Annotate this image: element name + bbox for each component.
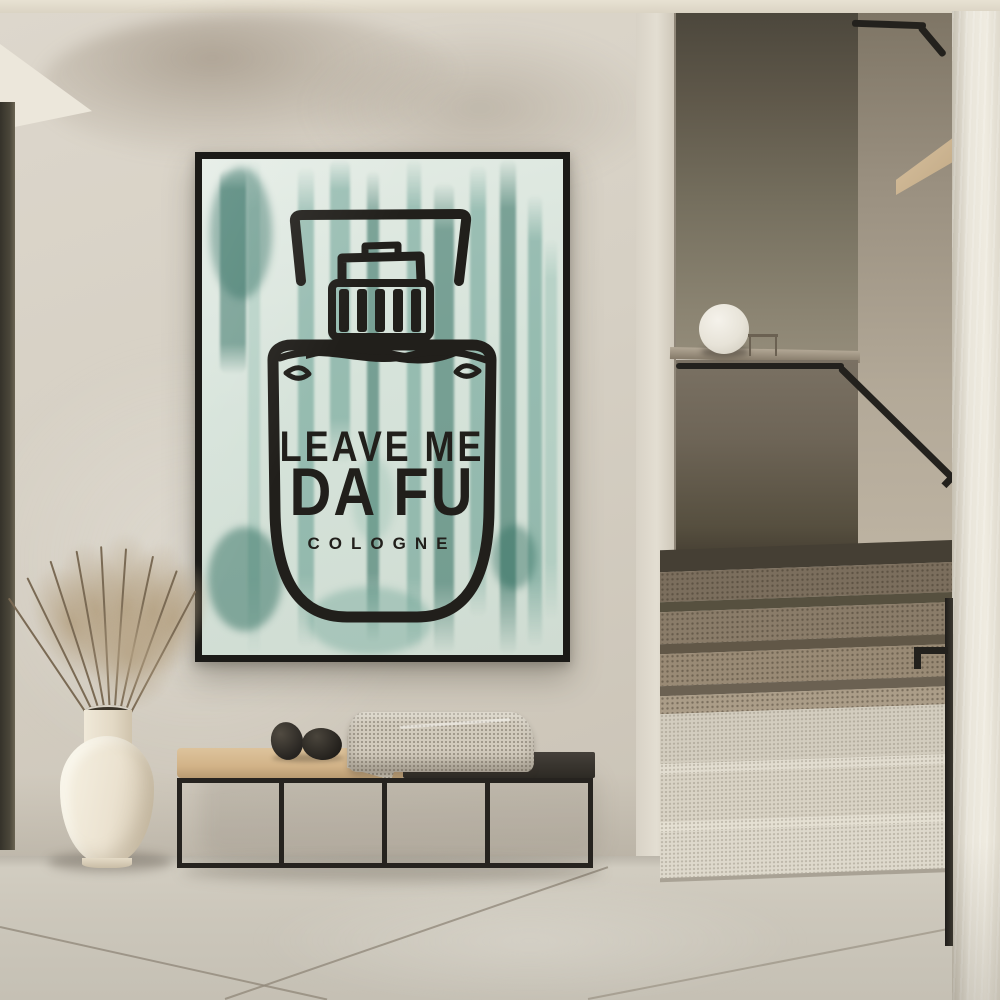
poster-frame: LEAVE ME DA FU COLOGNE [195,152,570,662]
stairwell-back-wall [676,13,858,358]
door-frame-edge [0,102,15,850]
dried-grass-plume [84,598,178,710]
bench-frame-divider [382,783,387,863]
wall-shade [952,841,1000,1000]
lower-handrail-bracket [914,647,921,669]
mini-table [748,334,778,337]
mini-table-leg [749,336,751,356]
bench-frame [177,778,593,868]
mini-table-leg [775,336,777,356]
print-sheen [202,159,563,655]
bench-frame-divider [279,783,284,863]
staircase [660,540,952,882]
handrail [676,363,844,369]
bench-frame-divider [485,783,490,863]
sphere-lamp [699,304,749,354]
poster-art: LEAVE ME DA FU COLOGNE [202,159,563,655]
parapet [676,360,858,556]
interior-scene: LEAVE ME DA FU COLOGNE [0,0,1000,1000]
vase-foot [82,858,132,868]
right-wall-column [952,11,1000,1000]
